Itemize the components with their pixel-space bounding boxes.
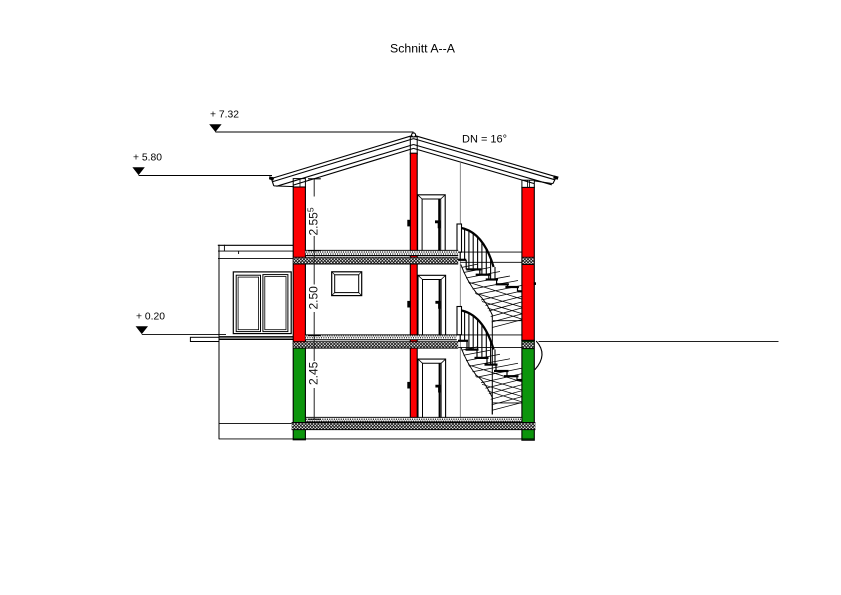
svg-text:+ 0.20: + 0.20	[136, 312, 165, 323]
svg-text:DN = 16°: DN = 16°	[462, 134, 507, 146]
svg-text:Schnitt A--A: Schnitt A--A	[390, 42, 456, 56]
svg-text:+ 5.80: + 5.80	[133, 153, 162, 164]
svg-text:2.50: 2.50	[306, 286, 320, 310]
svg-text:2.45: 2.45	[306, 361, 320, 385]
svg-text:+ 7.32: + 7.32	[210, 110, 239, 121]
